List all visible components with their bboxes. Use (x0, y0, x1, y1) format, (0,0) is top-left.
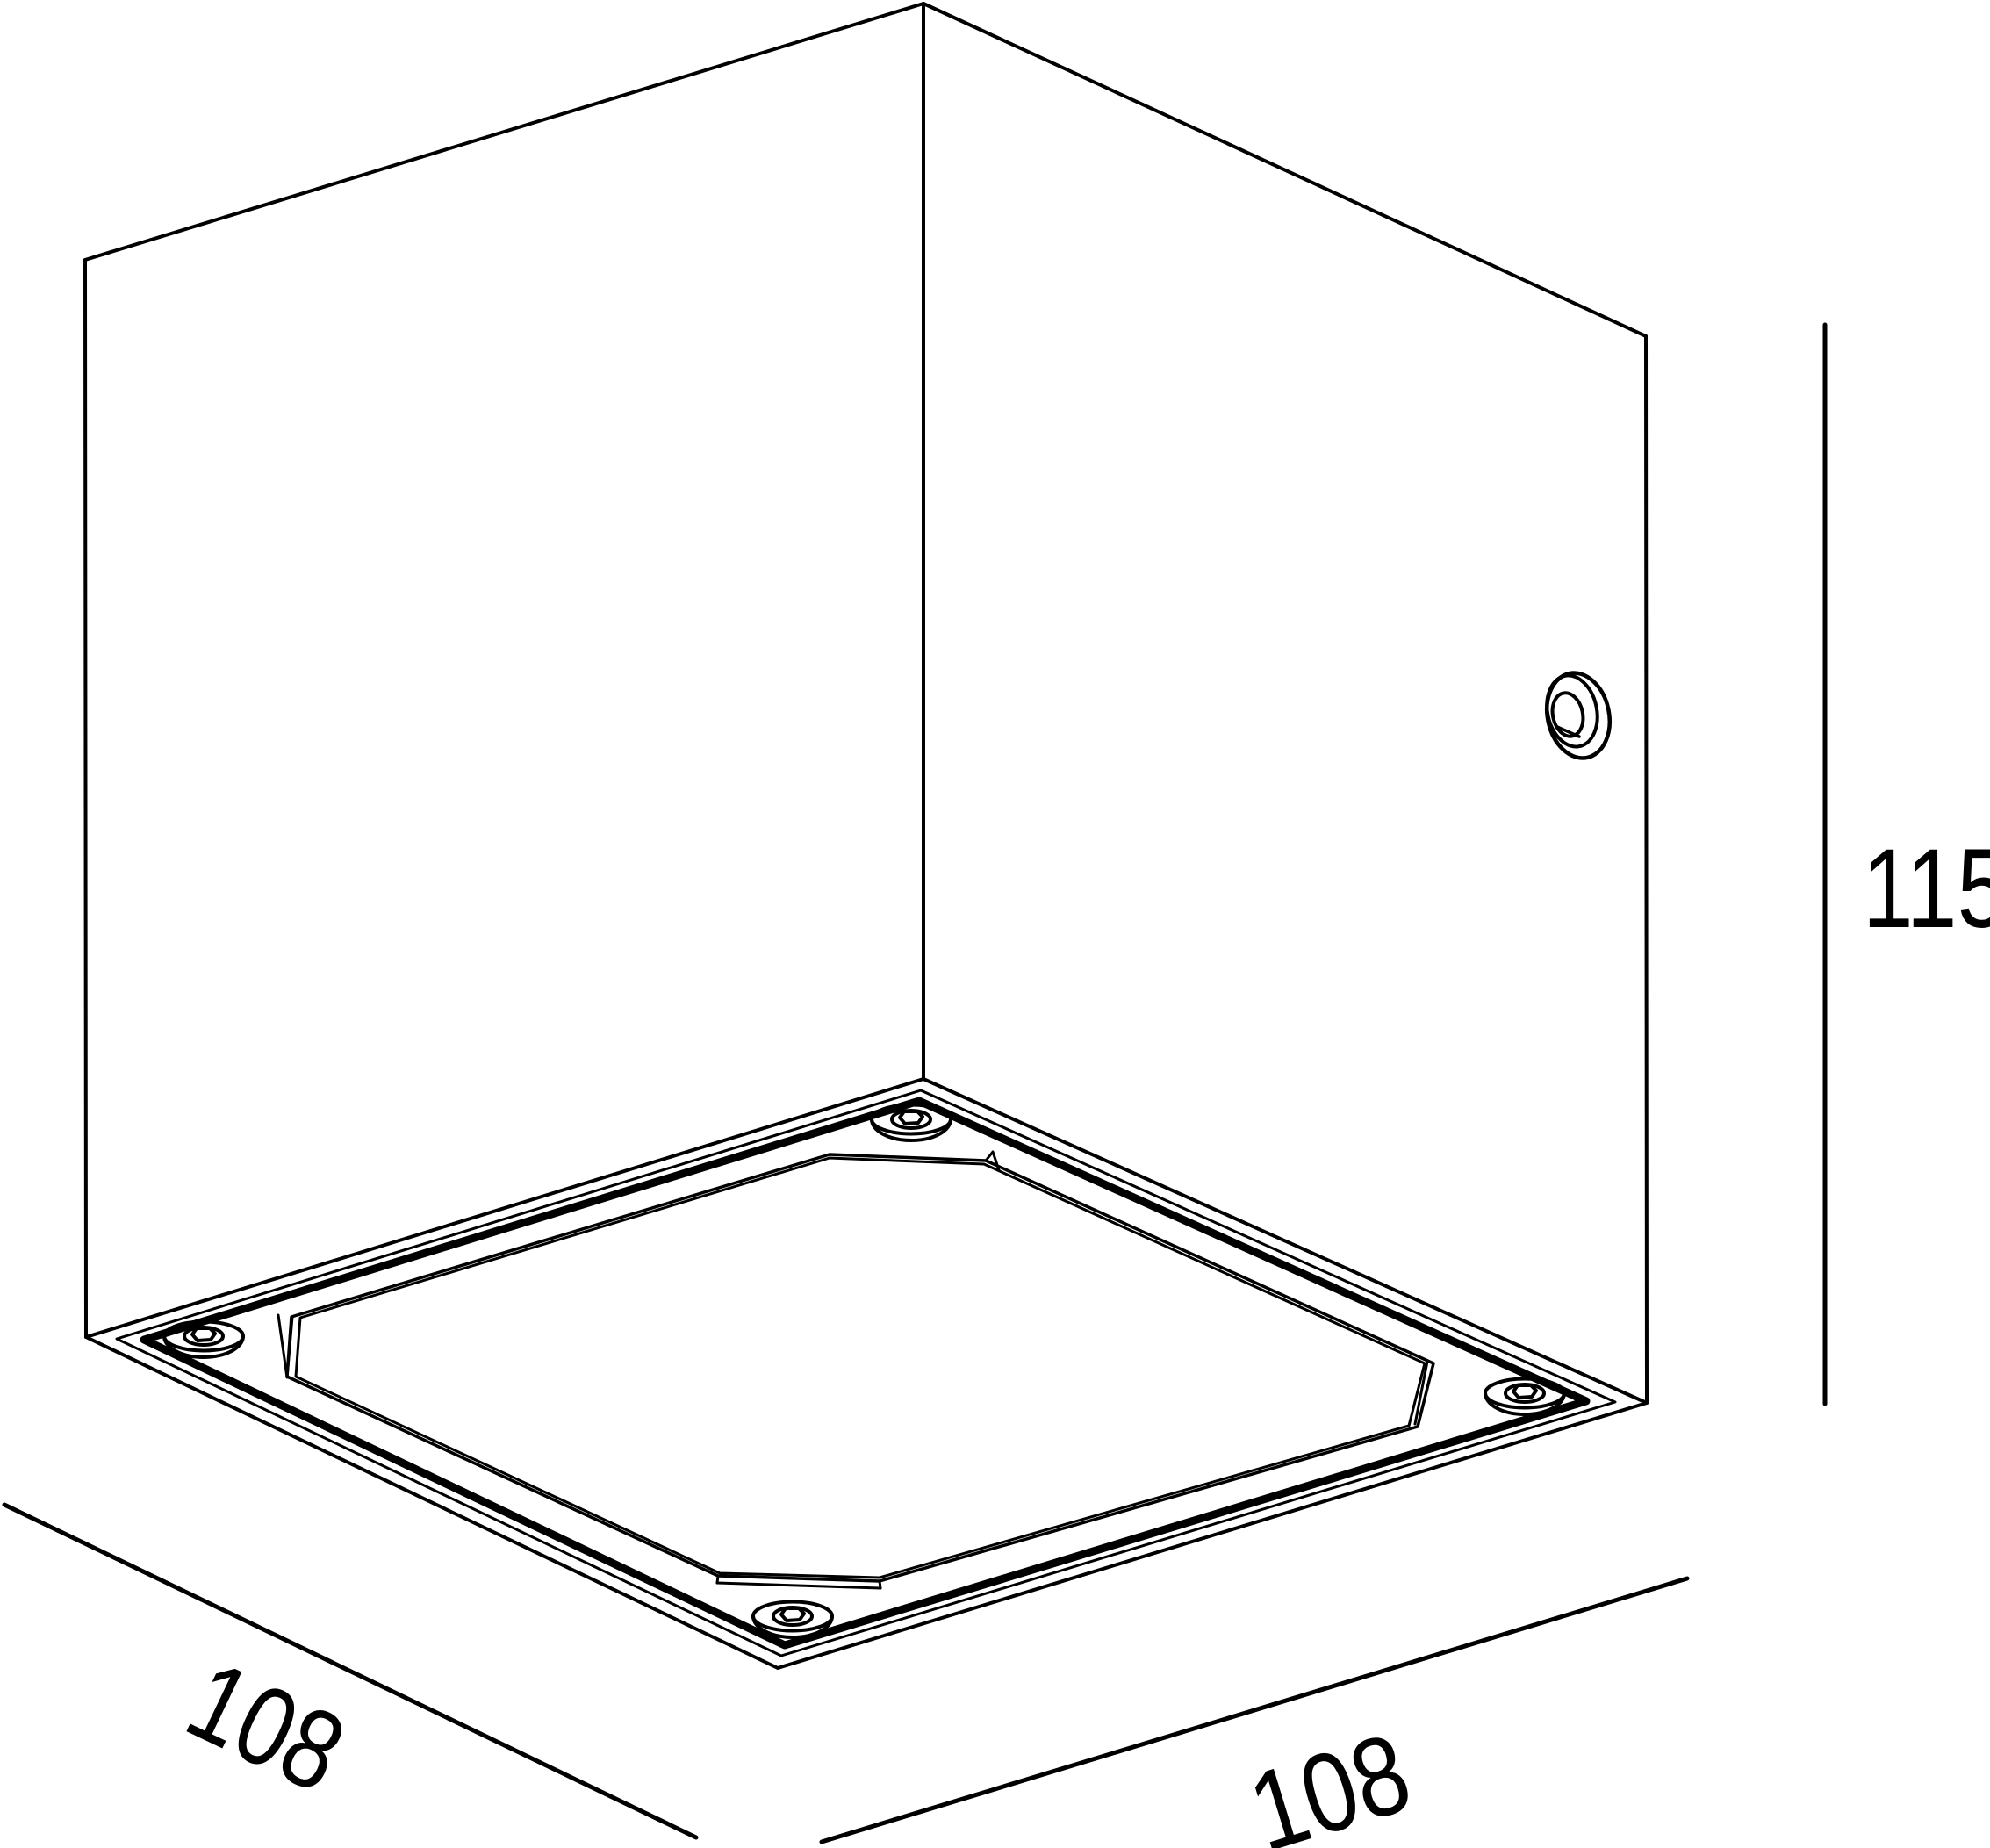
drawing-canvas: 108 108 115 (0, 0, 1990, 1848)
cube-edge-left-vertical (85, 260, 86, 1337)
glass-chamfer-far-right-edge (880, 1581, 880, 1588)
bottom-face-rim-line (117, 1090, 1615, 1656)
glass-chamfer-far-left-edge (717, 1576, 718, 1583)
dimension-label-width: 108 (1236, 1709, 1424, 1848)
technical-drawing: 108 108 115 (0, 0, 1990, 1848)
screw-right-hex-socket (1513, 1385, 1536, 1398)
screw-left-hex-socket (192, 1328, 215, 1341)
screw-near-hex-socket (900, 1111, 923, 1124)
cube-luminaire-outline (4, 4, 1825, 1842)
cube-edge-right-vertical (1646, 336, 1647, 1403)
screw-far-hex-socket (781, 1608, 804, 1621)
glass-corner-chamfer-far (717, 1583, 880, 1588)
dimension-label-height: 115 (1863, 826, 1990, 952)
bottom-face-gasket-line (144, 1101, 1586, 1645)
cube-edge-top-left (85, 4, 923, 260)
cube-edge-top-right (923, 4, 1646, 336)
